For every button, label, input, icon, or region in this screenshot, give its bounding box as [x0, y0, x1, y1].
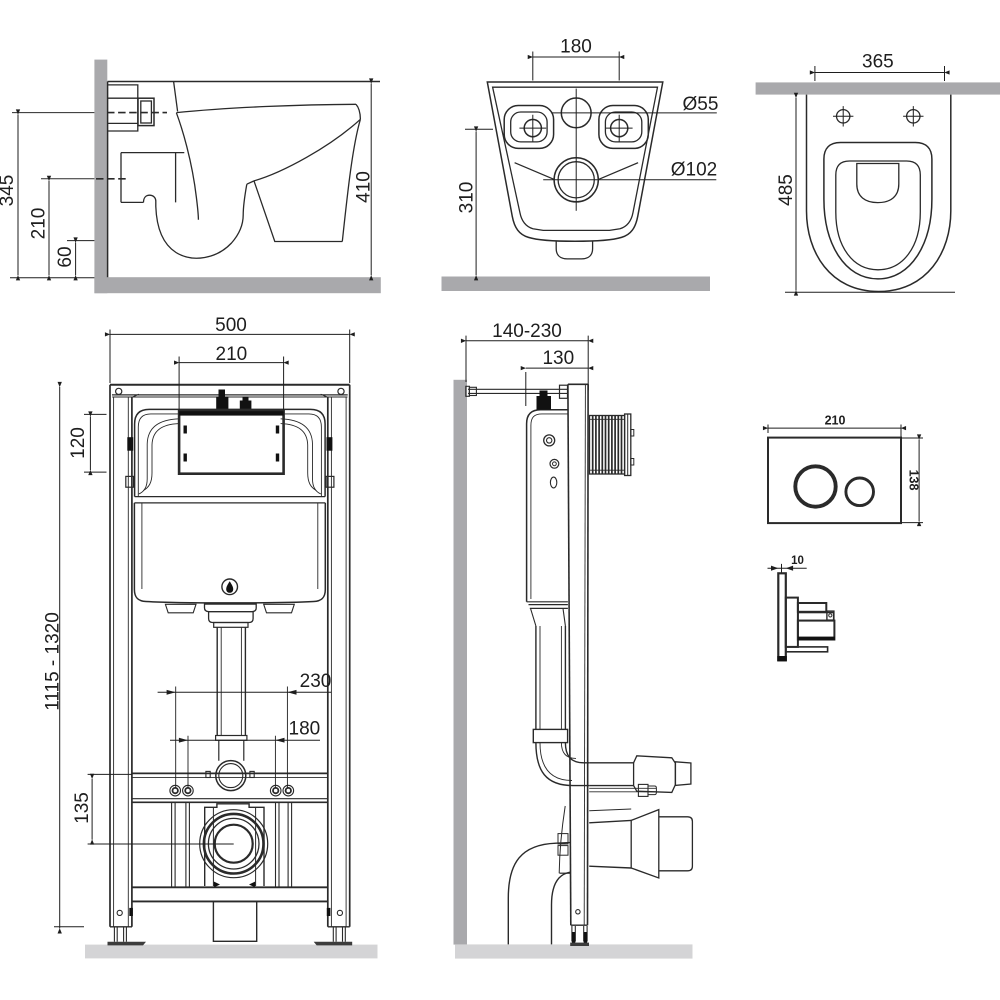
svg-text:210: 210 — [29, 208, 50, 240]
svg-text:365: 365 — [862, 52, 894, 73]
svg-text:210: 210 — [825, 414, 846, 428]
svg-text:410: 410 — [354, 171, 375, 203]
svg-text:1115 - 1320: 1115 - 1320 — [43, 612, 64, 711]
svg-text:210: 210 — [216, 344, 248, 365]
svg-text:138: 138 — [907, 470, 921, 491]
svg-text:310: 310 — [457, 182, 478, 214]
svg-text:485: 485 — [776, 174, 797, 206]
svg-text:Ø102: Ø102 — [671, 160, 717, 181]
svg-text:180: 180 — [289, 719, 321, 740]
svg-text:500: 500 — [215, 315, 247, 336]
svg-text:230: 230 — [300, 671, 332, 692]
svg-text:345: 345 — [0, 175, 18, 207]
svg-text:140-230: 140-230 — [492, 321, 562, 342]
svg-text:10: 10 — [791, 555, 804, 567]
svg-text:Ø55: Ø55 — [683, 94, 719, 115]
svg-text:120: 120 — [68, 427, 89, 459]
svg-text:130: 130 — [542, 348, 574, 369]
svg-text:180: 180 — [560, 37, 592, 58]
svg-text:135: 135 — [72, 792, 93, 824]
svg-text:60: 60 — [55, 246, 76, 267]
